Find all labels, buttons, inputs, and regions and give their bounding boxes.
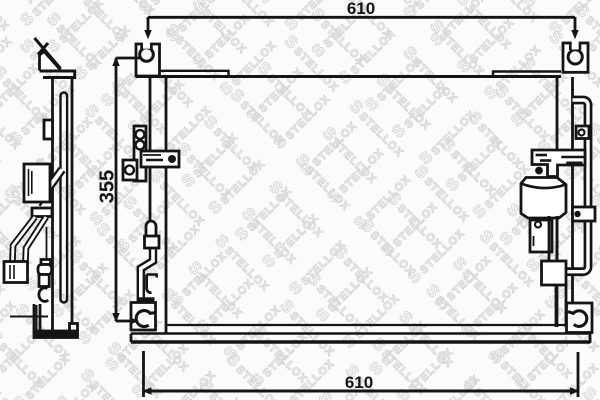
svg-text:610: 610 [345, 373, 373, 392]
svg-text:355: 355 [97, 170, 119, 203]
svg-text:610: 610 [347, 0, 375, 18]
